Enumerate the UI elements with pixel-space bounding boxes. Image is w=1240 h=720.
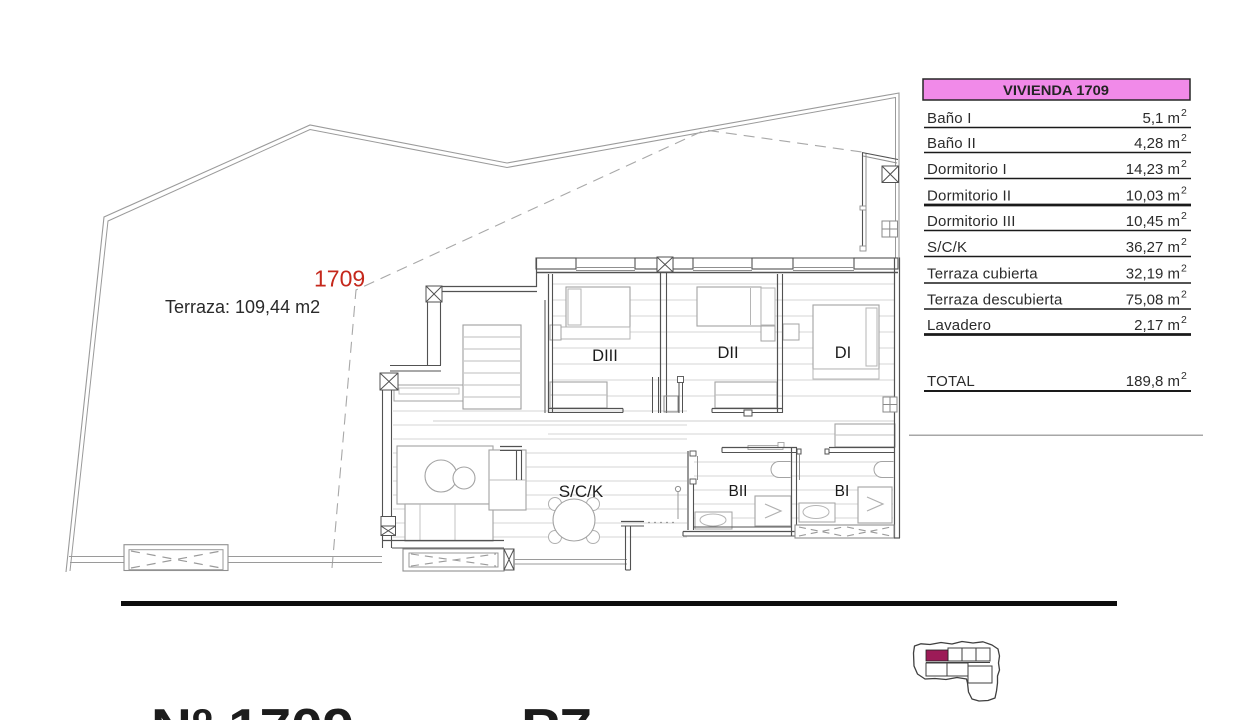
- svg-text:Baño I: Baño I: [927, 110, 972, 127]
- svg-text:2: 2: [1181, 314, 1187, 326]
- svg-text:Lavadero: Lavadero: [927, 317, 991, 334]
- svg-text:Baño II: Baño II: [927, 135, 976, 152]
- svg-text:Nº 1709: Nº 1709: [151, 699, 354, 720]
- svg-text:4,28 m: 4,28 m: [1134, 135, 1180, 152]
- svg-text:36,27 m: 36,27 m: [1126, 239, 1180, 256]
- svg-text:DIII: DIII: [592, 347, 618, 365]
- svg-text:Dormitorio II: Dormitorio II: [927, 188, 1011, 205]
- svg-text:P7: P7: [521, 699, 592, 720]
- svg-text:BII: BII: [729, 483, 748, 500]
- svg-text:DI: DI: [835, 344, 852, 362]
- svg-text:DII: DII: [717, 344, 738, 362]
- svg-text:Dormitorio I: Dormitorio I: [927, 161, 1007, 178]
- svg-text:2: 2: [1181, 370, 1187, 382]
- svg-text:VIVIENDA 1709: VIVIENDA 1709: [1003, 83, 1109, 98]
- svg-text:1709: 1709: [314, 266, 365, 292]
- svg-text:2,17 m: 2,17 m: [1134, 317, 1180, 334]
- svg-text:32,19 m: 32,19 m: [1126, 266, 1180, 283]
- svg-text:14,23 m: 14,23 m: [1126, 161, 1180, 178]
- svg-text:2: 2: [1181, 132, 1187, 144]
- svg-text:BI: BI: [835, 483, 850, 500]
- svg-text:S/C/K: S/C/K: [927, 239, 967, 256]
- svg-text:2: 2: [1181, 107, 1187, 119]
- svg-text:Terraza descubierta: Terraza descubierta: [927, 292, 1063, 309]
- svg-text:2: 2: [1181, 158, 1187, 170]
- svg-text:10,03 m: 10,03 m: [1126, 188, 1180, 205]
- svg-text:TOTAL: TOTAL: [927, 373, 975, 390]
- svg-text:189,8 m: 189,8 m: [1126, 373, 1180, 390]
- svg-text:2: 2: [1181, 185, 1187, 197]
- svg-text:2: 2: [1181, 263, 1187, 275]
- svg-text:2: 2: [1181, 289, 1187, 301]
- svg-text:S/C/K: S/C/K: [559, 482, 604, 501]
- svg-text:10,45 m: 10,45 m: [1126, 213, 1180, 230]
- svg-text:Terraza: 109,44 m2: Terraza: 109,44 m2: [165, 297, 320, 317]
- svg-text:75,08 m: 75,08 m: [1126, 292, 1180, 309]
- svg-text:2: 2: [1181, 210, 1187, 222]
- svg-text:Dormitorio III: Dormitorio III: [927, 213, 1016, 230]
- svg-text:2: 2: [1181, 236, 1187, 248]
- svg-text:Terraza cubierta: Terraza cubierta: [927, 266, 1038, 283]
- svg-text:5,1 m: 5,1 m: [1142, 110, 1180, 127]
